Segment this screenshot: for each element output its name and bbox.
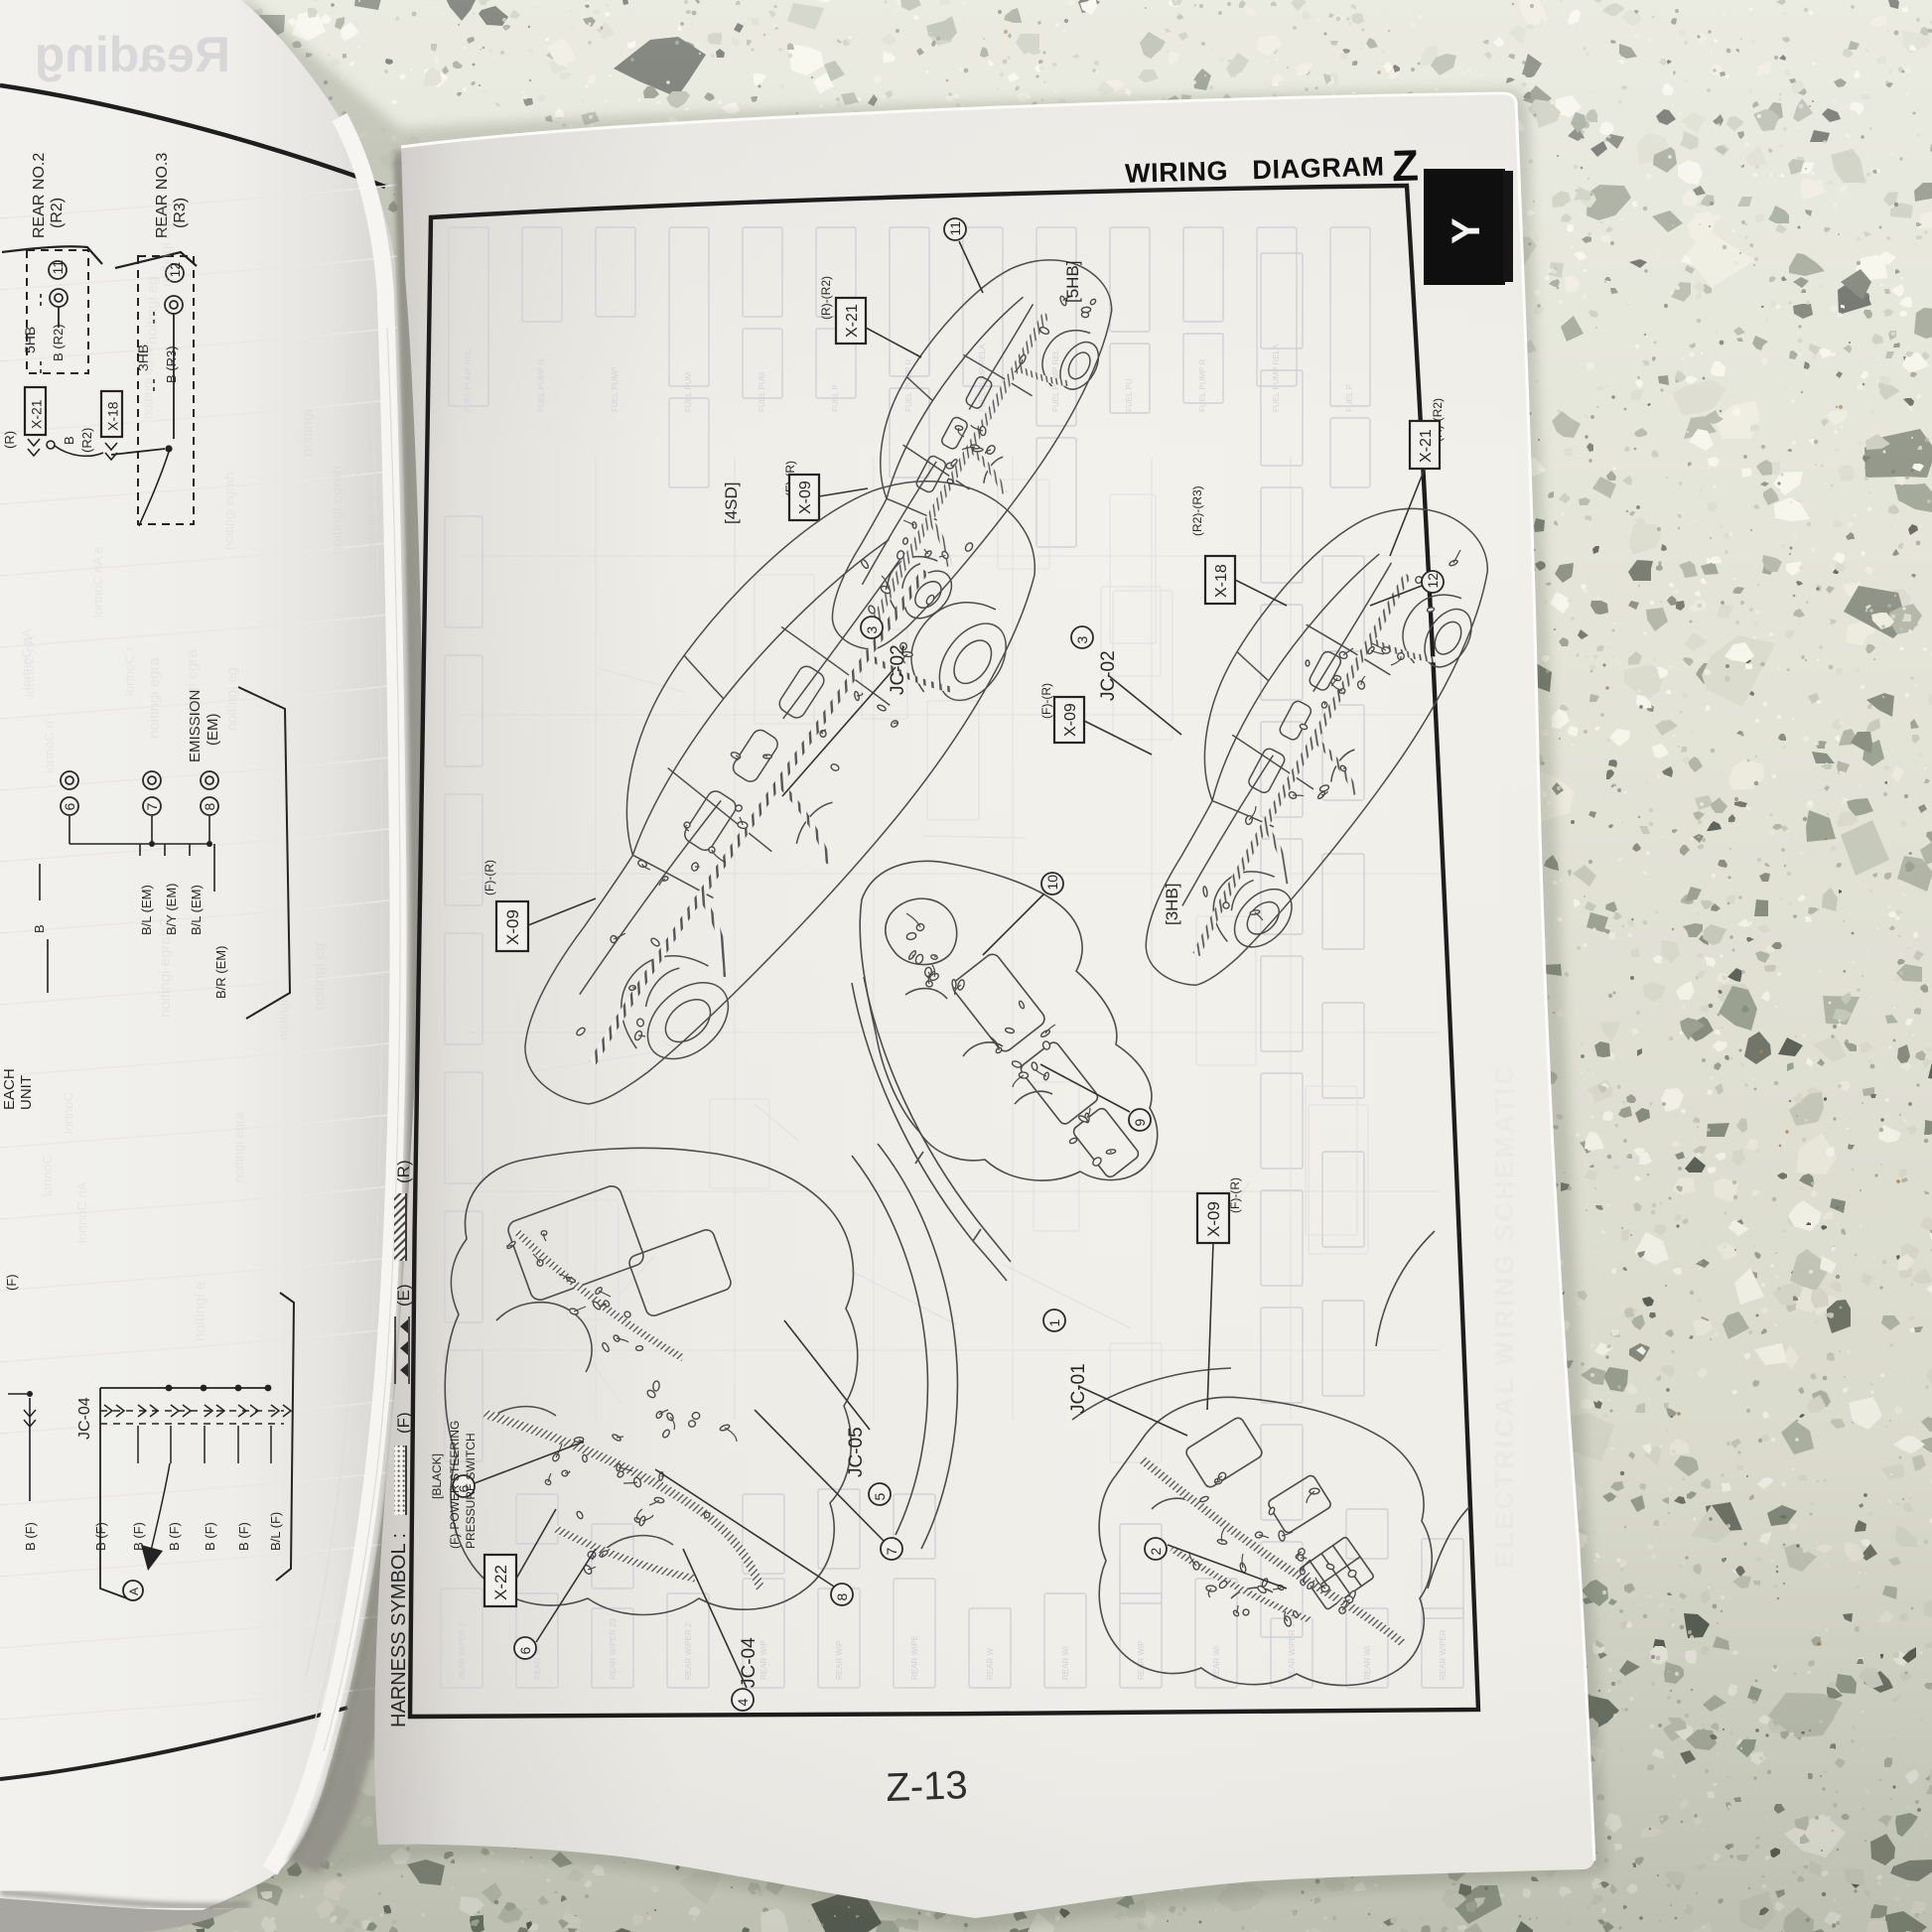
svg-text:(F): (F)	[4, 1274, 19, 1291]
svg-text:REAR WIPER 20: REAR WIPER 20	[609, 1618, 618, 1680]
svg-text:4: 4	[735, 1699, 751, 1707]
svg-text:noitingi: noitingi	[299, 409, 316, 457]
svg-text:B (R3): B (R3)	[164, 345, 179, 383]
svg-text:X-09: X-09	[503, 909, 522, 945]
svg-text:FUEL PUMP R: FUEL PUMP R	[1198, 358, 1207, 412]
svg-text:FUEL PUM: FUEL PUM	[684, 372, 693, 412]
svg-text:noitingi egrah: noitingi egrah	[221, 473, 236, 550]
svg-text:REAR WI: REAR WI	[1363, 1646, 1372, 1680]
svg-text:FUEL PUMP R: FUEL PUMP R	[537, 358, 546, 412]
svg-text:REAR W: REAR W	[986, 1648, 995, 1680]
svg-text:noitingi egra: noitingi egra	[184, 649, 201, 731]
svg-text:[BLACK]: [BLACK]	[430, 1453, 444, 1499]
svg-text:noitingi egra: noitingi egra	[146, 657, 163, 739]
svg-text:B (F): B (F)	[167, 1522, 182, 1551]
svg-text:REAR WIPER 2: REAR WIPER 2	[1288, 1622, 1297, 1680]
svg-text:X-21: X-21	[1418, 429, 1435, 463]
svg-text:REAR WIPE: REAR WIPE	[910, 1635, 919, 1680]
svg-text:lortnoC ri: lortnoC ri	[42, 721, 57, 773]
svg-text:REAR WI: REAR WI	[1061, 1646, 1070, 1680]
svg-text:noitingi eg: noitingi eg	[223, 667, 239, 731]
svg-text:5HB: 5HB	[22, 327, 38, 353]
svg-text:lortnoC r: lortnoC r	[122, 645, 137, 696]
svg-text:8: 8	[202, 803, 217, 811]
svg-text:B/L (EM): B/L (EM)	[189, 885, 204, 935]
svg-text:B (F): B (F)	[23, 1522, 38, 1551]
svg-text:3: 3	[1074, 636, 1090, 644]
svg-text:7: 7	[884, 1548, 899, 1556]
svg-text:lortnoC: lortnoC	[61, 1092, 75, 1134]
svg-text:B (F): B (F)	[236, 1522, 251, 1551]
svg-text:X-18: X-18	[1213, 564, 1230, 598]
svg-text:REAR WIPER 2: REAR WIPER 2	[458, 1622, 467, 1680]
svg-text:noitingi eg: noitingi eg	[311, 943, 328, 1011]
svg-text:(R): (R)	[394, 1160, 413, 1183]
svg-text:FUEL PUMP REL: FUEL PUMP REL	[464, 348, 473, 412]
svg-text:B: B	[32, 924, 47, 933]
svg-text:12: 12	[1425, 573, 1441, 589]
svg-text:(F)-POWER STEERING: (F)-POWER STEERING	[448, 1421, 462, 1549]
svg-text:11: 11	[50, 260, 66, 275]
svg-text:REAR WIPER 2: REAR WIPER 2	[684, 1622, 693, 1680]
svg-text:(EM): (EM)	[205, 714, 221, 747]
svg-text:(R3): (R3)	[172, 198, 189, 228]
svg-text:B: B	[62, 436, 76, 445]
svg-text:X-09: X-09	[1062, 703, 1079, 737]
svg-text:X-21: X-21	[29, 399, 45, 429]
svg-text:6: 6	[517, 1647, 533, 1655]
svg-text:(F)-(R): (F)-(R)	[483, 860, 496, 896]
svg-text:7: 7	[144, 803, 160, 811]
svg-text:JC-01: JC-01	[1068, 1363, 1089, 1414]
svg-text:EACH: EACH	[1, 1068, 18, 1110]
svg-text:REAR NO.2: REAR NO.2	[31, 153, 48, 238]
svg-text:noitingi egrah: noitingi egrah	[329, 466, 345, 555]
svg-text:2: 2	[1148, 1548, 1164, 1556]
svg-text:JC-02: JC-02	[888, 644, 908, 695]
svg-text:(F)-(R): (F)-(R)	[1039, 683, 1053, 719]
svg-text:JC-04: JC-04	[739, 1637, 759, 1688]
svg-text:9: 9	[1132, 1119, 1148, 1127]
svg-text:X-18: X-18	[105, 401, 121, 431]
svg-text:FUEL PUM: FUEL PUM	[758, 372, 766, 412]
svg-text:B (R2): B (R2)	[51, 324, 66, 361]
svg-text:lortnoC riA: lortnoC riA	[74, 1181, 89, 1243]
svg-text:(E): (E)	[394, 1284, 413, 1307]
svg-text:lortnoC riA e: lortnoC riA e	[90, 546, 105, 618]
svg-text:REAR WIP: REAR WIP	[1137, 1640, 1146, 1680]
svg-text:(R2): (R2)	[79, 428, 94, 453]
svg-text:B/L (EM): B/L (EM)	[139, 885, 154, 935]
svg-text:REAR WIP: REAR WIP	[835, 1640, 844, 1680]
svg-text:(R2): (R2)	[49, 198, 66, 228]
svg-text:8: 8	[834, 1593, 850, 1601]
svg-text:noitingi egrahC: noitingi egrahC	[157, 917, 174, 1018]
svg-text:3: 3	[864, 626, 880, 634]
svg-text:X-09: X-09	[1204, 1201, 1223, 1237]
svg-text:REAR WIP: REAR WIP	[759, 1640, 768, 1680]
svg-text:A: A	[127, 1587, 141, 1595]
svg-text:UNIT: UNIT	[18, 1075, 35, 1110]
svg-text:ELECTRICAL WIRING SCHEMATIC: ELECTRICAL WIRING SCHEMATIC	[1489, 1063, 1519, 1569]
svg-text:[3HB]: [3HB]	[1163, 883, 1181, 925]
svg-text:FUEL PU: FUEL PU	[1125, 378, 1134, 412]
svg-text:(R2)-(R3): (R2)-(R3)	[1190, 485, 1204, 536]
svg-text:[4SD]: [4SD]	[722, 482, 741, 524]
svg-text:noitingi egra: noitingi egra	[231, 1111, 246, 1182]
svg-text:B/L (F): B/L (F)	[268, 1512, 283, 1551]
svg-text:REAR WIPER: REAR WIPER	[1439, 1629, 1448, 1680]
svg-text:JC-04: JC-04	[76, 1397, 93, 1440]
svg-text:PRESSURE SWITCH: PRESSURE SWITCH	[464, 1433, 478, 1549]
svg-text:X-09: X-09	[797, 481, 814, 514]
svg-text:6: 6	[62, 803, 77, 811]
svg-text:FUEL P: FUEL P	[831, 384, 840, 412]
svg-text:Y: Y	[1445, 217, 1488, 244]
svg-text:1: 1	[1046, 1319, 1062, 1327]
svg-text:11: 11	[947, 221, 963, 236]
svg-text:(F): (F)	[394, 1412, 413, 1434]
svg-text:Z: Z	[1391, 142, 1419, 192]
svg-text:(R)-(R2): (R)-(R2)	[819, 276, 833, 320]
svg-text:(R): (R)	[2, 431, 17, 449]
svg-text:X-22: X-22	[491, 1565, 510, 1600]
svg-text:noitingi egrah: noitingi egrah	[158, 204, 174, 287]
svg-text:FUEL PUMP RELA: FUEL PUMP RELA	[1272, 344, 1281, 412]
svg-text:noitingi e: noitingi e	[192, 1282, 208, 1341]
svg-text:FUEL PUMP R: FUEL PUMP R	[904, 358, 913, 412]
svg-text:FUEL P: FUEL P	[1345, 384, 1354, 412]
svg-text:10: 10	[1044, 875, 1060, 891]
svg-text:JC-05: JC-05	[846, 1427, 867, 1477]
svg-text:5: 5	[872, 1493, 888, 1501]
svg-text:B (F): B (F)	[93, 1522, 108, 1551]
svg-text:lortnoC: lortnoC	[40, 1155, 55, 1196]
svg-text:Reading: Reading	[35, 27, 230, 82]
svg-text:B/R (EM): B/R (EM)	[213, 946, 228, 999]
svg-text:HARNESS SYMBOL :: HARNESS SYMBOL :	[388, 1533, 410, 1727]
svg-text:B (F): B (F)	[203, 1522, 217, 1551]
svg-text:Z-13: Z-13	[886, 1763, 969, 1810]
svg-text:FUEL PUMP: FUEL PUMP	[611, 367, 620, 413]
svg-text:[5HB]: [5HB]	[1063, 260, 1082, 303]
svg-text:lortnoC riA: lortnoC riA	[22, 635, 37, 697]
svg-text:noitingi egrah: noitingi egrah	[140, 342, 155, 419]
svg-text:X-21: X-21	[844, 304, 861, 338]
svg-text:noitingi: noitingi	[276, 1000, 291, 1040]
